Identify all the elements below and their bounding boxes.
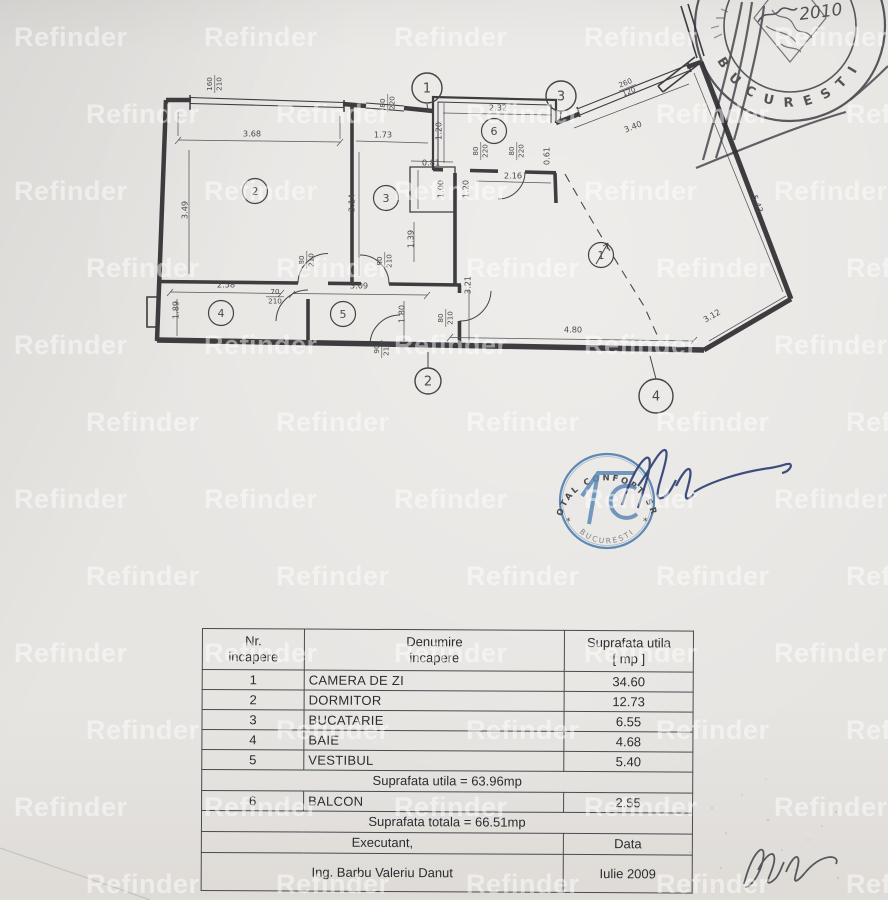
- table-header-cell: Suprafata utila[ mp ]: [564, 630, 693, 672]
- table-cell: 12.73: [564, 691, 693, 712]
- svg-text:3.68: 3.68: [243, 129, 261, 139]
- dimension-lines: [167, 73, 786, 344]
- axis-marker: 3: [546, 81, 576, 111]
- dimension-label: 3.21: [463, 276, 473, 294]
- svg-text:2.16: 2.16: [504, 171, 522, 181]
- dimension-label: 1.20: [434, 122, 444, 140]
- svg-text:80: 80: [507, 146, 516, 156]
- dimension-label: 1.20: [461, 180, 471, 198]
- svg-text:1.20: 1.20: [461, 180, 471, 198]
- svg-text:3: 3: [557, 90, 565, 105]
- svg-text:80: 80: [297, 255, 306, 265]
- svg-text:160: 160: [205, 77, 214, 91]
- svg-text:3.12: 3.12: [701, 307, 722, 325]
- area-table: Nr.incapereDenumireincapereSuprafata uti…: [201, 628, 694, 894]
- room-marker: 3: [374, 186, 399, 211]
- table-row: Suprafata totala = 66.51mp: [201, 811, 692, 835]
- dimension-label: 80210: [375, 252, 394, 270]
- table-header-cell: Denumireincapere: [304, 629, 564, 671]
- svg-text:220: 220: [517, 144, 526, 158]
- dimension-label: 80220: [471, 142, 490, 160]
- floor-plan-drawing: 1602103.683.49802201.733.142.321.2080220…: [147, 4, 791, 413]
- stamp-star-right: *: [643, 517, 648, 527]
- paper-crease: [0, 848, 150, 900]
- table-row: 5VESTIBUL5.40: [202, 750, 693, 773]
- svg-text:2.32: 2.32: [489, 103, 507, 113]
- svg-text:80: 80: [471, 146, 480, 156]
- room-marker: 5: [331, 302, 356, 327]
- svg-text:1.89: 1.89: [171, 301, 181, 319]
- dimension-label: 1.39: [406, 230, 416, 248]
- svg-text:5: 5: [340, 308, 347, 321]
- svg-text:1.73: 1.73: [374, 130, 392, 140]
- table-cell: 1: [202, 670, 304, 691]
- svg-text:4.80: 4.80: [564, 325, 582, 335]
- dimension-label: 1.73: [374, 130, 392, 140]
- company-stamp-top-text: TOTAL CONFORT SRL: [0, 0, 659, 518]
- area-table-container: Nr.incapereDenumireincapereSuprafata uti…: [201, 628, 694, 894]
- table-cell: DORMITOR: [304, 690, 564, 711]
- scanned-document-page: RefinderRefinderRefinderRefinderRefinder…: [0, 0, 888, 900]
- dimension-label: 3.68: [243, 129, 261, 139]
- svg-text:2.58: 2.58: [217, 280, 235, 290]
- dimension-label: 70210: [266, 287, 284, 306]
- axis-marker: 2: [415, 368, 441, 394]
- table-cell: Ing. Barbu Valeriu Danut: [201, 852, 563, 892]
- dimension-label: 3.40: [622, 118, 643, 134]
- table-cell: 6: [202, 791, 304, 812]
- table-cell: 4.68: [564, 731, 693, 752]
- svg-text:3.40: 3.40: [622, 118, 643, 134]
- dimension-label: 160210: [205, 75, 224, 93]
- table-cell: BALCON: [304, 791, 564, 812]
- table-cell: Suprafata utila = 63.96mp: [202, 770, 693, 794]
- dimension-label: 80210: [297, 251, 316, 269]
- dimension-label: 80220: [507, 142, 526, 160]
- table-cell: 34.60: [564, 671, 693, 692]
- svg-text:1.00: 1.00: [436, 180, 446, 198]
- table-cell: CAMERA DE ZI: [304, 670, 564, 691]
- svg-text:1: 1: [598, 249, 605, 262]
- svg-text:3.14: 3.14: [347, 194, 357, 212]
- table-cell: VESTIBUL: [304, 750, 564, 771]
- dimension-label: 260120: [615, 75, 639, 99]
- svg-text:1.80: 1.80: [397, 305, 407, 323]
- svg-text:0.61: 0.61: [542, 147, 552, 165]
- table-row: Ing. Barbu Valeriu DanutIulie 2009: [201, 852, 692, 893]
- dimension-label: 3.14: [347, 194, 357, 212]
- dimension-label: 0.61: [542, 147, 552, 165]
- dimension-label: 1.89: [171, 301, 181, 319]
- table-row: 3BUCATARIE6.55: [202, 710, 693, 733]
- dimension-label: 80210: [436, 309, 455, 327]
- table-cell: 5: [202, 750, 304, 771]
- table-row: 1CAMERA DE ZI34.60: [202, 670, 693, 693]
- table-cell: Suprafata totala = 66.51mp: [201, 811, 692, 835]
- table-cell: BUCATARIE: [304, 710, 564, 731]
- table-cell: 6.55: [564, 711, 693, 732]
- svg-text:210: 210: [215, 77, 224, 91]
- dimension-label: 1.80: [397, 305, 407, 323]
- dimension-label: 3.12: [701, 307, 722, 325]
- stamp-star-left: *: [566, 517, 571, 527]
- svg-text:3: 3: [383, 192, 390, 205]
- handwritten-year: 2010: [798, 0, 843, 25]
- svg-text:3.21: 3.21: [463, 276, 473, 294]
- svg-text:220: 220: [388, 96, 397, 110]
- svg-text:80: 80: [375, 256, 384, 266]
- svg-text:6: 6: [491, 125, 498, 138]
- photocopy-speckles: [689, 778, 839, 888]
- svg-text:4: 4: [652, 390, 660, 405]
- svg-text:80: 80: [378, 98, 387, 108]
- dimension-label: 3.09: [350, 281, 368, 291]
- svg-text:5.43: 5.43: [750, 194, 766, 215]
- dimension-label: 2.16: [504, 171, 522, 181]
- table-header-cell: Nr.incapere: [202, 629, 304, 671]
- svg-text:210: 210: [268, 297, 282, 306]
- signature-black-bottom: [744, 850, 837, 887]
- svg-text:70: 70: [270, 287, 280, 296]
- table-row: Suprafata utila = 63.96mp: [202, 770, 693, 794]
- svg-text:2: 2: [424, 375, 432, 390]
- svg-text:4: 4: [218, 307, 225, 320]
- window-bedroom: [190, 95, 344, 112]
- company-stamp: TOTAL CONFORT SRL BUCURESTI * *: [0, 0, 659, 548]
- table-cell: BAIE: [304, 730, 564, 751]
- table-row: 2DORMITOR12.73: [202, 690, 693, 713]
- svg-text:1.39: 1.39: [406, 230, 416, 248]
- room-marker: 1: [589, 243, 614, 268]
- table-cell: 2: [202, 690, 304, 711]
- svg-text:210: 210: [307, 253, 316, 267]
- dimension-labels: 1602103.683.49802201.733.142.321.2080220…: [171, 75, 766, 358]
- svg-text:1.20: 1.20: [434, 122, 444, 140]
- svg-text:3.49: 3.49: [180, 201, 190, 219]
- dimension-label: 2.32: [489, 103, 507, 113]
- axis-marker: 4: [639, 379, 673, 413]
- dimension-label: 5.43: [750, 194, 766, 215]
- svg-text:1: 1: [423, 82, 431, 97]
- svg-text:210: 210: [385, 254, 394, 268]
- table-cell: 5.40: [564, 751, 693, 772]
- dimension-label: 2.58: [217, 280, 235, 290]
- table-cell: Executant,: [201, 831, 563, 854]
- signature-blue: [622, 450, 791, 508]
- svg-text:210: 210: [446, 311, 455, 325]
- dimension-label: 1.00: [436, 180, 446, 198]
- room-marker: 4: [209, 301, 234, 326]
- table-cell: Iulie 2009: [563, 854, 692, 893]
- svg-text:3.09: 3.09: [350, 281, 368, 291]
- svg-text:220: 220: [481, 144, 490, 158]
- table-cell: 4: [202, 730, 304, 751]
- axis-marker: 1: [412, 73, 442, 103]
- table-row: Executant,Data: [201, 831, 692, 855]
- table-cell: 3: [202, 710, 304, 731]
- dimension-label: 3.49: [180, 201, 190, 219]
- city-stamp: BUCURESTI 2010: [695, 0, 888, 168]
- svg-text:80: 80: [436, 313, 445, 323]
- room-marker: 6: [482, 119, 507, 144]
- svg-text:90: 90: [372, 344, 381, 354]
- svg-text:0.81: 0.81: [422, 158, 440, 168]
- room-marker: 2: [243, 179, 268, 204]
- table-row: 4BAIE4.68: [202, 730, 693, 753]
- table-cell: Data: [563, 833, 692, 855]
- table-cell: 2.55: [564, 792, 693, 813]
- table-header-row: Nr.incapereDenumireincapereSuprafata uti…: [202, 629, 693, 673]
- dimension-label: 0.81: [422, 158, 440, 168]
- dashed-boundary-line: [565, 174, 658, 337]
- table-row: 6BALCON2.55: [202, 791, 693, 814]
- svg-text:210: 210: [382, 342, 391, 356]
- dimension-label: 4.80: [564, 325, 582, 335]
- svg-text:2: 2: [252, 185, 259, 198]
- room-number-markers: 123456: [209, 119, 614, 327]
